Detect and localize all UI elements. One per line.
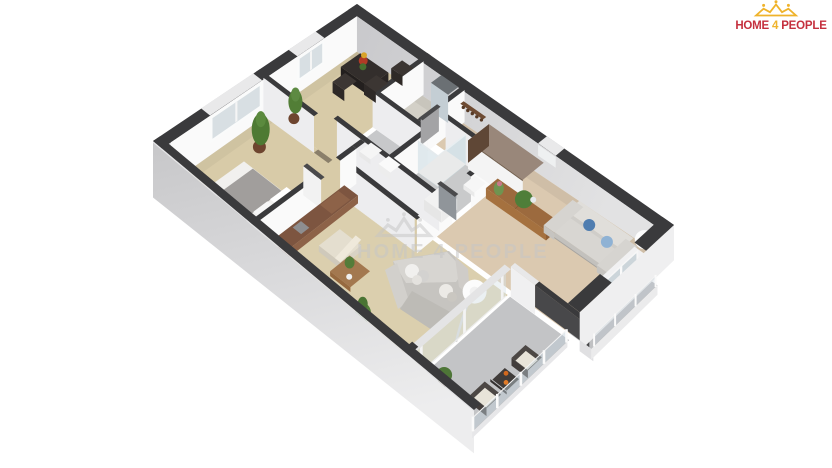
svg-text:HOME 4 PEOPLE: HOME 4 PEOPLE — [735, 20, 827, 32]
svg-text:HOME 4 PEOPLE: HOME 4 PEOPLE — [357, 241, 549, 263]
